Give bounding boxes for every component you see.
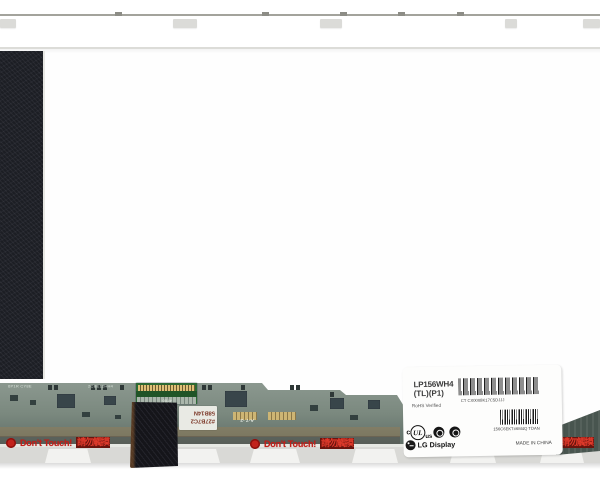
- warning-text: Don't Touch!: [20, 438, 72, 448]
- frame-tab: [173, 19, 197, 28]
- sticker-code-line1: #27B7C2: [191, 418, 215, 424]
- barcode-2-text: 156C6EKT#6M4Q TDAN: [493, 426, 539, 431]
- ul-certification-mark: c UL us: [406, 425, 432, 440]
- sticker-code-line2: 58B14N: [191, 409, 215, 415]
- brand-name: LG Display: [418, 440, 456, 449]
- flange-tab: [352, 449, 398, 463]
- pcb-code-sticker: #27B7C2 58B14N: [179, 406, 217, 430]
- warning-sticker-left: Don't Touch! 請勿觸摸: [6, 436, 110, 449]
- lvds-connector: 4T00: [136, 383, 197, 404]
- frame-tick: [457, 12, 464, 16]
- pcb-component: [54, 385, 58, 390]
- frame-tab: [505, 19, 517, 28]
- pcb-silkscreen: 6P1R CY8E: [8, 384, 32, 389]
- pcb-stencil-code: A-7 -2: [240, 418, 254, 424]
- frame-tab: [0, 19, 16, 28]
- pcb-chip: [225, 391, 247, 407]
- model-number: LP156WH4: [413, 380, 453, 390]
- panel-drop-shadow: [0, 463, 600, 469]
- ul-circle-icon: UL: [410, 425, 425, 440]
- cert-mark-2-icon: [449, 426, 460, 437]
- barcode-1: [458, 377, 539, 395]
- pcb-component: [310, 405, 318, 411]
- pcb-component: [120, 385, 124, 390]
- frame-tick: [262, 12, 269, 16]
- black-pull-tape: [130, 402, 178, 468]
- pcb-component: [208, 385, 212, 390]
- pcb-component: [115, 415, 121, 419]
- pcb-component: [30, 400, 36, 405]
- frame-tab: [320, 19, 342, 28]
- product-photo-stage: 6P1R CY8E 2CBE12HH4 4T00 #27B7C2 58B14N …: [0, 0, 600, 485]
- warning-sticker-middle: Don't Touch! 請勿觸摸: [250, 437, 354, 450]
- cert-mark-1-icon: [433, 427, 444, 438]
- frame-shadow: [0, 49, 600, 53]
- connector-code: 4T00: [163, 398, 172, 403]
- tape-edge-highlight: [43, 51, 45, 379]
- pcb-component: [350, 415, 358, 420]
- warning-text-cjk: 請勿觸摸: [560, 437, 594, 448]
- pcb-component: [241, 385, 245, 390]
- frame-tick: [398, 12, 405, 16]
- dont-touch-icon: [250, 439, 260, 449]
- pcb-component: [48, 385, 52, 390]
- frame-tab: [583, 19, 600, 28]
- frame-tick: [115, 12, 122, 16]
- pcb-component: [82, 412, 90, 417]
- pcb-component: [202, 385, 206, 390]
- left-mounting-tape: [0, 51, 43, 379]
- frame-tick: [340, 12, 347, 16]
- pcb-component: [10, 395, 18, 401]
- ul-text: UL: [413, 429, 422, 437]
- pcb-chip: [57, 394, 75, 408]
- pcb-component: [290, 385, 294, 390]
- flange-tab: [250, 449, 300, 463]
- pcb-chip: [104, 396, 116, 405]
- warning-text: Don't Touch!: [264, 439, 316, 449]
- panel-top-edge: [0, 14, 600, 16]
- barcode-1-text: CT CX0008K17C5DJJJ: [461, 398, 505, 403]
- pcb-component: [296, 385, 300, 390]
- lg-display-logo: LG Display: [406, 439, 460, 450]
- barcode-2: [500, 409, 538, 425]
- pcb-chip: [368, 400, 380, 409]
- flange-tab: [45, 449, 91, 463]
- pcb-gold-pads: [268, 412, 296, 420]
- rohs-text: RoHS Verified: [412, 403, 441, 409]
- spec-label: LP156WH4 (TL)(P1) RoHS Verified CT CX000…: [402, 365, 563, 458]
- made-in-text: MADE IN CHINA: [516, 440, 552, 446]
- pcb-component: [330, 392, 334, 397]
- lg-logo-icon: [406, 440, 416, 450]
- sticker-codes: #27B7C2 58B14N: [181, 407, 215, 424]
- pcb-chip: [330, 398, 344, 409]
- dont-touch-icon: [6, 438, 16, 448]
- warning-text-cjk: 請勿觸摸: [76, 437, 110, 448]
- pcb-silkscreen: 2CBE12HH4: [88, 384, 113, 389]
- warning-text-cjk: 請勿觸摸: [320, 438, 354, 449]
- model-variant: (TL)(P1): [414, 389, 444, 399]
